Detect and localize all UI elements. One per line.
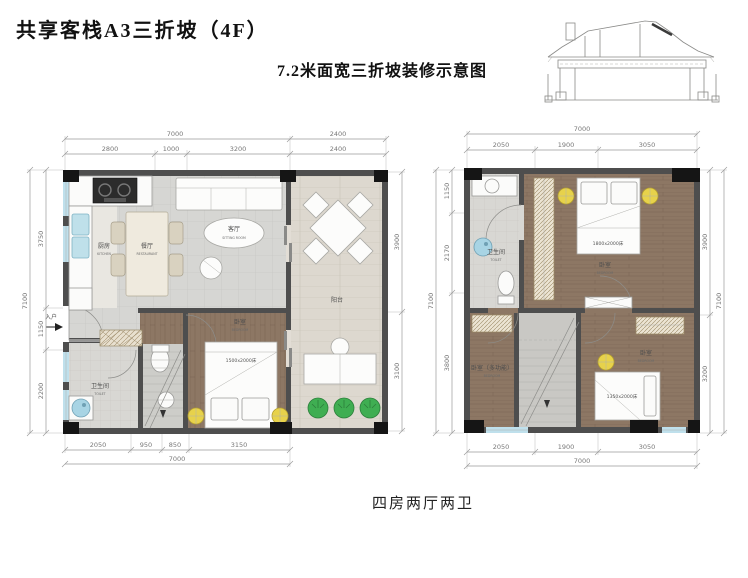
svg-text:1150: 1150 [443, 183, 451, 200]
bedroom-label: 卧室 [234, 318, 246, 326]
entry-label: 入户 [45, 313, 57, 321]
svg-text:KITCHEN: KITCHEN [97, 252, 111, 256]
svg-text:BEDROOM: BEDROOM [232, 328, 249, 332]
sofa [176, 178, 282, 210]
svg-text:3200: 3200 [701, 366, 709, 383]
svg-text:RESTAURANT: RESTAURANT [136, 252, 157, 256]
wardrobe [472, 315, 512, 332]
svg-text:1150: 1150 [37, 321, 45, 338]
lower-floor-plan: 入户 厨房 KITCHEN [8, 120, 428, 480]
master-bedroom-label: 卧室 [599, 261, 611, 269]
page-subtitle: 7.2米面宽三折坡装修示意图 [277, 57, 487, 81]
washer-icon [72, 399, 90, 417]
kitchen-sink-icon [72, 214, 89, 235]
roof-section-drawing [540, 5, 746, 117]
bed-size-label: 1800x2000床 [593, 240, 624, 247]
multi-bedroom-label: 卧室（多功能） [471, 364, 513, 372]
svg-text:7000: 7000 [169, 455, 186, 463]
dining-label: 餐厅 [141, 242, 153, 250]
svg-text:2400: 2400 [330, 130, 347, 138]
svg-text:3750: 3750 [37, 231, 45, 248]
basin-icon [485, 179, 499, 193]
svg-text:1900: 1900 [558, 443, 575, 451]
plant-icon [334, 398, 354, 418]
wardrobe [636, 317, 684, 334]
balcony-label: 阳台 [331, 296, 343, 304]
bed-size-label: 1500x2000床 [226, 357, 257, 364]
svg-text:950: 950 [140, 441, 152, 449]
svg-text:7100: 7100 [715, 293, 723, 310]
svg-text:TOILET: TOILET [93, 392, 105, 396]
svg-text:3100: 3100 [393, 363, 401, 380]
svg-text:BEDROOM: BEDROOM [638, 359, 655, 363]
svg-text:3800: 3800 [443, 355, 451, 372]
roof-profile [548, 21, 714, 62]
small-bedroom-label: 卧室 [640, 349, 652, 357]
living-label: 客厅 [228, 225, 240, 233]
svg-text:3150: 3150 [231, 441, 248, 449]
svg-text:BEDROOM: BEDROOM [484, 374, 501, 378]
storage-cabinet [100, 330, 142, 346]
svg-text:BEDROOM: BEDROOM [597, 271, 614, 275]
svg-text:7100: 7100 [21, 293, 29, 310]
svg-text:TOILET: TOILET [489, 258, 501, 262]
svg-text:3900: 3900 [701, 234, 709, 251]
bathroom-label: 卫生间 [487, 248, 505, 256]
svg-text:2400: 2400 [330, 145, 347, 153]
floorplan-sheet: 共享客栈A3三折坡（4F） 7.2米面宽三折坡装修示意图 四房两厅两卫 [0, 0, 748, 578]
bed-size-label: 1350x2000床 [607, 393, 638, 400]
svg-text:3900: 3900 [393, 234, 401, 251]
svg-text:1900: 1900 [558, 141, 575, 149]
svg-text:7000: 7000 [574, 457, 591, 465]
stairs-floor [519, 313, 576, 427]
svg-text:850: 850 [169, 441, 181, 449]
plant-icon [308, 398, 328, 418]
plant-icon [360, 398, 380, 418]
living-label-oval [204, 218, 264, 248]
svg-text:1000: 1000 [163, 145, 180, 153]
toilet-icon [498, 271, 514, 295]
svg-text:7000: 7000 [574, 125, 591, 133]
svg-text:SITTING ROOM: SITTING ROOM [222, 236, 246, 240]
svg-text:7100: 7100 [427, 293, 435, 310]
svg-text:3050: 3050 [639, 443, 656, 451]
svg-text:3050: 3050 [639, 141, 656, 149]
floor-slab [545, 60, 719, 102]
bathroom-label: 卫生间 [91, 382, 109, 390]
desk-chair [331, 338, 349, 356]
svg-text:2050: 2050 [90, 441, 107, 449]
svg-text:2050: 2050 [493, 443, 510, 451]
svg-text:2800: 2800 [102, 145, 119, 153]
upper-floor-plan: 卫生间 TOILET 1800x2000床 卧室 BEDROOM 卧室（多功能） [428, 115, 743, 480]
svg-text:3200: 3200 [230, 145, 247, 153]
svg-text:2050: 2050 [493, 141, 510, 149]
unit-type-label: 四房两厅两卫 [372, 492, 474, 513]
kitchen-label: 厨房 [98, 242, 110, 250]
svg-text:7000: 7000 [167, 130, 184, 138]
svg-text:2200: 2200 [37, 383, 45, 400]
page-title: 共享客栈A3三折坡（4F） [16, 14, 269, 43]
svg-text:2170: 2170 [443, 245, 451, 262]
